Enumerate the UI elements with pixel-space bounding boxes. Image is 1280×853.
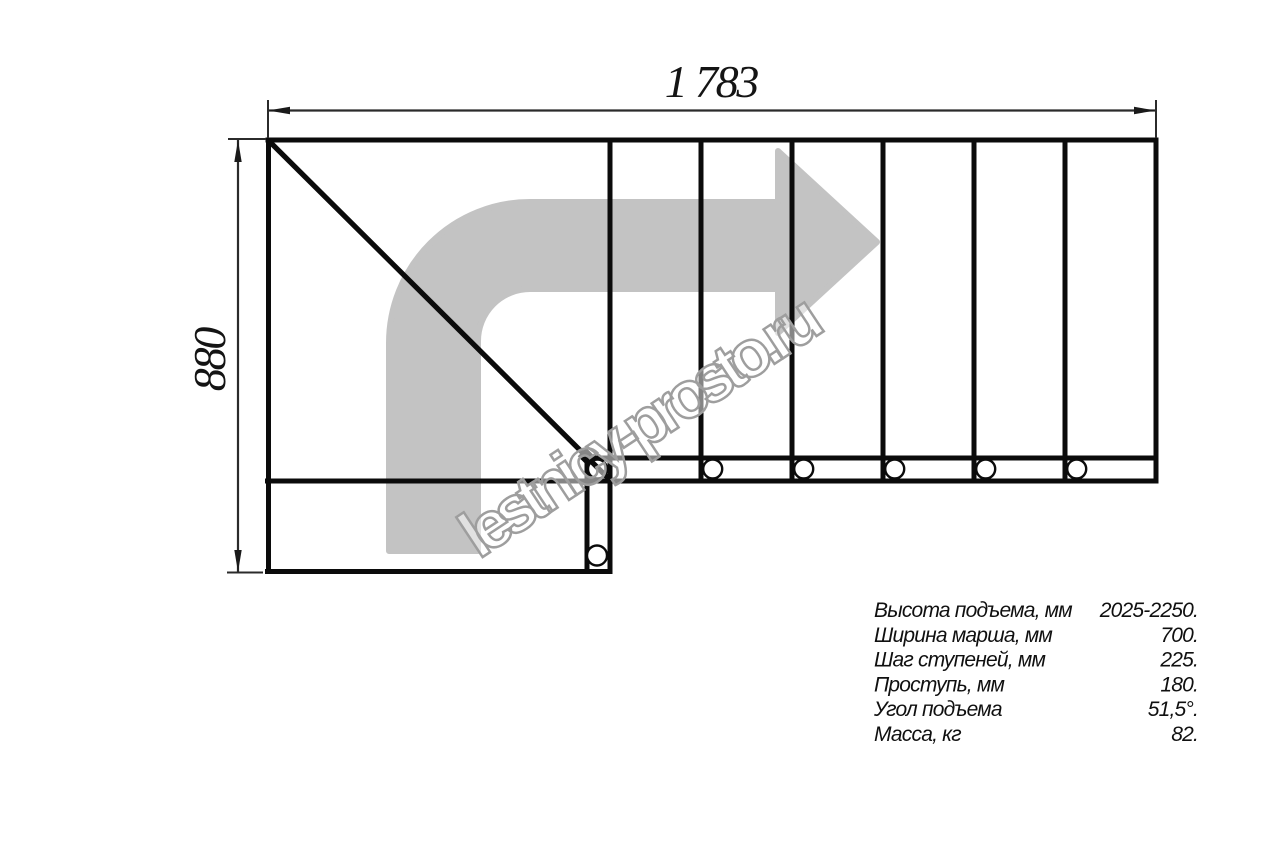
svg-text:82.: 82. [1171, 723, 1198, 746]
svg-text:Шаг ступеней, мм: Шаг ступеней, мм [874, 649, 1045, 672]
svg-text:700.: 700. [1160, 624, 1198, 647]
svg-text:Высота подъема, мм: Высота подъема, мм [874, 599, 1072, 622]
svg-text:180.: 180. [1160, 673, 1198, 696]
svg-text:1 783: 1 783 [665, 56, 759, 107]
svg-text:Ширина марша, мм: Ширина марша, мм [874, 624, 1052, 647]
svg-text:Масса, кг: Масса, кг [874, 723, 961, 746]
svg-text:51,5°.: 51,5°. [1148, 698, 1198, 721]
svg-text:Угол подъема: Угол подъема [873, 698, 1002, 721]
svg-text:Проступь, мм: Проступь, мм [874, 673, 1004, 696]
svg-text:880: 880 [184, 327, 235, 392]
svg-text:225.: 225. [1159, 649, 1198, 672]
svg-text:2025-2250.: 2025-2250. [1099, 599, 1198, 622]
